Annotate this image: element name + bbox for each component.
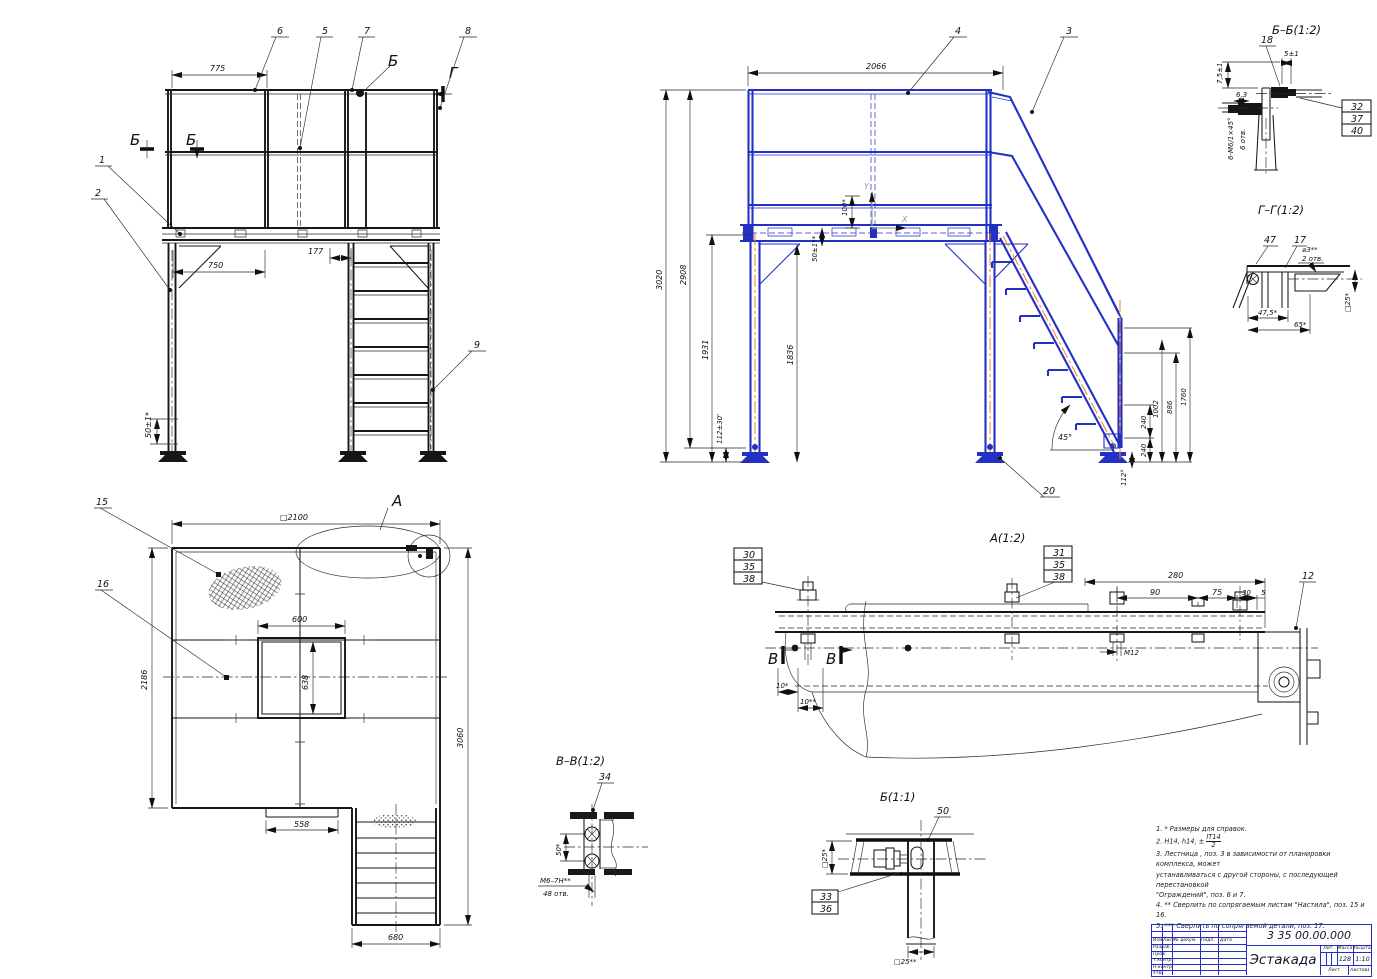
dim-886: 886 <box>1166 400 1174 414</box>
dim-280: 280 <box>1168 571 1183 580</box>
tb-razrab: Разраб. <box>1153 945 1171 950</box>
plan-view: A □2100 2186 3060 600 638 558 680 15 16 <box>94 492 472 948</box>
callout-chamfer: 6-М6/1×45° <box>1227 117 1235 160</box>
tb-h-doc: № докум. <box>1174 938 1197 943</box>
pos-34: 34 <box>599 772 611 783</box>
note-3: 3. Лестница , поз. 3 в зависимости от пл… <box>1156 849 1370 869</box>
pos-1: 1 <box>99 155 105 166</box>
dim-5pm1: 5±1 <box>1284 50 1299 58</box>
axis-x-label: X <box>901 215 908 224</box>
dim-600: 600 <box>292 615 307 624</box>
dim-3060: 3060 <box>456 728 465 748</box>
tb-sheets-value: 1 <box>1367 968 1370 973</box>
dim-2100: □2100 <box>280 513 308 522</box>
section-gg-title: Г–Г(1:2) <box>1258 203 1304 217</box>
front-view: Б Б Б Г 775 750 177 50±1* 1 2 6 5 7 8 9 <box>91 26 486 462</box>
dim-10a: 10* <box>776 682 789 690</box>
dim-100: 100* <box>841 199 849 216</box>
ref-30: 30 <box>743 550 755 561</box>
note-3c: "Ограждений", поз. 6 и 7. <box>1156 890 1370 900</box>
thread-holes: 48 отв. <box>543 890 569 898</box>
pos-20: 20 <box>1043 486 1055 497</box>
dim-2908: 2908 <box>679 265 688 285</box>
ref-36: 36 <box>820 904 832 915</box>
ref-31: 31 <box>1053 548 1065 559</box>
tb-h-scale: Масштаб <box>1353 945 1372 952</box>
section-vv: В–В(1:2) 50* М6–7Н** 48 отв. 34 <box>538 754 648 906</box>
dim-558: 558 <box>294 820 309 829</box>
pos-6: 6 <box>277 26 283 37</box>
pos-50: 50 <box>937 806 949 817</box>
ref-35a: 35 <box>743 562 755 573</box>
side-view: Y X 2066 3020 2908 1931 1836 112±30' 100… <box>655 26 1192 497</box>
pos-47: 47 <box>1264 235 1276 246</box>
cut-label-v2: В <box>826 650 836 668</box>
dim-112: 112±30' <box>716 414 724 444</box>
tb-h-date: Дата <box>1220 938 1232 943</box>
pos-17: 17 <box>1294 235 1306 246</box>
tb-nkontr: Н.контр. <box>1153 965 1174 970</box>
ref-32: 32 <box>1351 102 1363 113</box>
dim-sq25b: □25** <box>894 958 917 966</box>
note-3b: устанавливаться с другой стороны, с посл… <box>1156 870 1370 890</box>
dim-680: 680 <box>388 933 403 942</box>
dim-hole-d3: ⌀3** <box>1302 246 1318 254</box>
detail-b-title: Б(1:1) <box>880 790 915 804</box>
pos-2: 2 <box>95 188 101 199</box>
dim-30: 30 <box>1242 589 1251 597</box>
dim-63: 6,3 <box>1236 91 1247 99</box>
section-bb-title: Б–Б(1:2) <box>1272 23 1321 37</box>
dim-1760: 1760 <box>1180 388 1188 406</box>
dim-90: 90 <box>1150 588 1160 597</box>
dim-5: 5 <box>1261 589 1266 597</box>
tb-mass-value: 128 <box>1337 952 1353 965</box>
cut-label-b1: Б <box>130 131 140 149</box>
cut-label-b2: Б <box>186 131 196 149</box>
dim-177: 177 <box>308 247 324 256</box>
drawing-notes: 1. * Размеры для справок. 2. H14, h14, ±… <box>1156 824 1370 931</box>
detail-a-mark: A <box>391 492 402 510</box>
pos-3: 3 <box>1066 26 1072 37</box>
dim-240a: 240 <box>1140 415 1148 429</box>
pos-4: 4 <box>955 26 961 37</box>
dim-2otv: 2 отв. <box>1302 255 1323 263</box>
section-gg: Г–Г(1:2) 47,5* 65* □25* ⌀3** 2 отв. 47 1… <box>1233 203 1362 334</box>
tb-prov: Пров. <box>1153 952 1166 957</box>
tb-scale-value: 1:10 <box>1353 952 1372 965</box>
note-4: 4. ** Сверлить по сопрягаемым листам "На… <box>1156 900 1370 920</box>
dim-10b: 10** <box>800 698 816 706</box>
callout-holes-6: 6 отв. <box>1239 129 1247 150</box>
dim-m12: М12 <box>1124 649 1139 657</box>
ref-38a: 38 <box>743 574 755 585</box>
note-2: 2. H14, h14, ± IT142 <box>1156 834 1370 849</box>
tb-sheets-label: Листов <box>1350 968 1367 973</box>
pos-8: 8 <box>465 26 471 37</box>
dim-75: 75 <box>1212 588 1222 597</box>
tb-sheet-label: Лист <box>1320 965 1348 975</box>
dim-475: 47,5* <box>1258 309 1278 317</box>
dim-750: 750 <box>208 261 223 270</box>
axis-y-label: Y <box>864 182 870 191</box>
dim-75pm1: 7,5±1 <box>1216 63 1224 84</box>
tb-doc-number: 3 35 00.00.000 <box>1246 925 1372 945</box>
dim-240b: 240 <box>1140 443 1148 457</box>
dim-638: 638 <box>301 675 310 690</box>
tb-part-name: Эстакада <box>1246 945 1320 975</box>
section-bb: Б–Б(1:2) 5±1 7,5±1 6,3 6-М6/1×45° 6 отв.… <box>1216 23 1371 176</box>
dim-1002: 1002 <box>1152 400 1160 418</box>
tb-utv: Утв. <box>1153 971 1163 976</box>
ref-38b: 38 <box>1053 572 1065 583</box>
detail-a-title: A(1:2) <box>989 531 1025 545</box>
detail-a: A(1:2) В В 10* 10** 280 90 75 30 5 М12 <box>734 531 1320 758</box>
dim-1931: 1931 <box>701 340 710 360</box>
ref-33: 33 <box>820 892 832 903</box>
note-1: 1. * Размеры для справок. <box>1156 824 1370 834</box>
dim-50-front: 50±1* <box>144 412 153 438</box>
dim-3020: 3020 <box>655 270 664 290</box>
dim-775: 775 <box>210 64 225 73</box>
tb-h-sign: Подп. <box>1201 938 1215 943</box>
dim-50-vv: 50* <box>555 843 563 856</box>
pos-5: 5 <box>322 26 328 37</box>
dim-112deg: 112° <box>1120 469 1128 486</box>
dim-50-side: 50±1** <box>811 235 819 262</box>
cut-label-v1: В <box>768 650 778 668</box>
pos-16: 16 <box>97 579 109 590</box>
dim-sq25-gg: □25* <box>1344 292 1352 312</box>
tb-h-mass: Масса <box>1337 945 1353 952</box>
tb-tkontr: Т.контр. <box>1153 958 1173 963</box>
dim-sq25a: □25* <box>821 848 829 868</box>
dim-2066: 2066 <box>866 62 886 71</box>
ref-40: 40 <box>1351 126 1363 137</box>
dim-65: 65* <box>1294 321 1307 329</box>
pos-15: 15 <box>96 497 108 508</box>
title-block: Изм. Лист № докум. Подп. Дата Разраб. Пр… <box>1151 924 1372 977</box>
pos-9: 9 <box>474 340 480 351</box>
ref-35b: 35 <box>1053 560 1065 571</box>
pos-18: 18 <box>1261 35 1273 46</box>
detail-b: Б(1:1) 50 33 36 □25* □25** <box>812 790 986 966</box>
section-vv-title: В–В(1:2) <box>556 754 605 768</box>
dim-45: 45° <box>1058 433 1072 442</box>
drawing-sheet: { "front": { "pos1":"1","pos2":"2","pos5… <box>0 0 1377 979</box>
dim-1836: 1836 <box>786 345 795 365</box>
tb-h-list: Лист <box>1163 938 1175 943</box>
cut-label-b-top: Б <box>388 52 398 70</box>
ref-37: 37 <box>1351 114 1363 125</box>
tb-h-lit: Лит. <box>1320 945 1337 952</box>
dim-2186: 2186 <box>140 670 149 690</box>
thread-note: М6–7Н** <box>540 877 571 885</box>
pos-7: 7 <box>364 26 370 37</box>
pos-12: 12 <box>1302 571 1314 582</box>
